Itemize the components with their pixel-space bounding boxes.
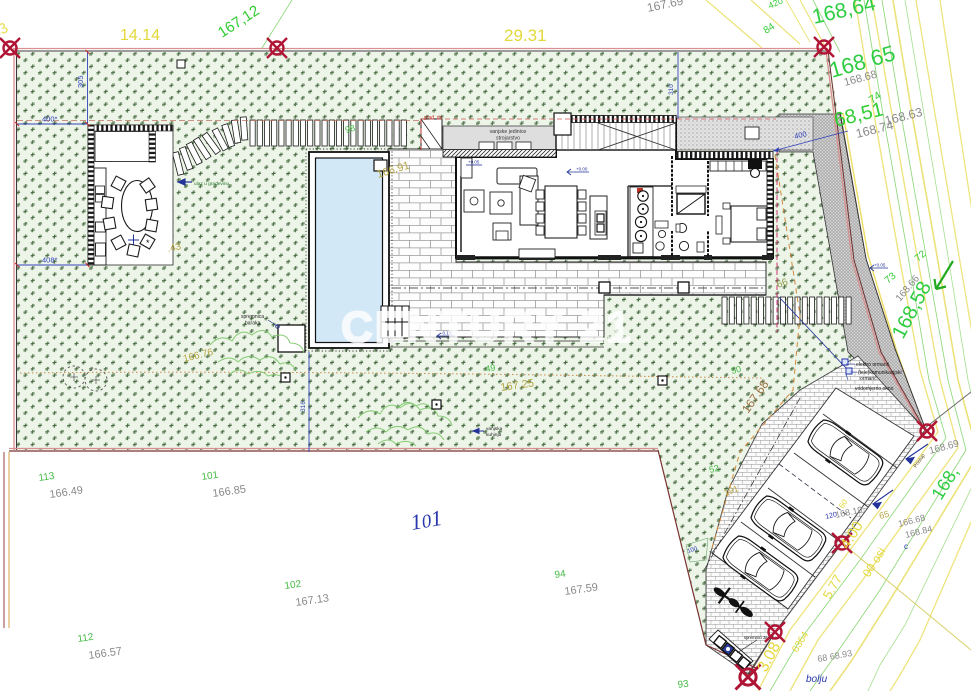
svg-text:112: 112 (77, 632, 95, 645)
svg-text:+0.05: +0.05 (874, 263, 886, 268)
svg-text:93: 93 (677, 678, 690, 691)
svg-text:408*: 408* (42, 256, 58, 265)
svg-text:vodomjerno okno: vodomjerno okno (855, 386, 894, 392)
svg-text:29.31: 29.31 (504, 26, 547, 45)
svg-text:spremnica: spremnica (241, 314, 264, 320)
svg-text:CENTURY 21: CENTURY 21 (341, 303, 632, 352)
svg-text:+0.05: +0.05 (468, 160, 480, 165)
svg-text:ulaz u građevinu: ulaz u građevinu (194, 181, 230, 187)
svg-text:c: c (904, 542, 908, 551)
svg-text:400*: 400* (42, 115, 58, 124)
svg-text:strojarstvo: strojarstvo (496, 136, 520, 142)
svg-text:baraka: baraka (245, 321, 261, 327)
svg-text:310: 310 (668, 84, 675, 95)
svg-text:*: * (146, 238, 150, 248)
svg-text:113: 113 (38, 471, 56, 484)
svg-text:+0.00: +0.00 (576, 167, 588, 172)
svg-text:elektro ormarić: elektro ormarić (856, 362, 890, 368)
svg-text:građ. do: građ. do (424, 115, 443, 121)
svg-text:ormarić: ormarić (860, 376, 877, 382)
svg-text:vanjske jedinice: vanjske jedinice (490, 129, 527, 135)
svg-text:14.14: 14.14 (120, 27, 160, 44)
svg-text:vanjska: vanjska (486, 426, 503, 432)
svg-text:94: 94 (554, 568, 567, 581)
svg-text:49: 49 (485, 362, 497, 374)
svg-text:316: 316 (300, 401, 307, 412)
svg-text:305: 305 (76, 75, 85, 88)
svg-text:kuhinja: kuhinja (486, 432, 502, 438)
svg-text:bolju: bolju (806, 674, 828, 685)
